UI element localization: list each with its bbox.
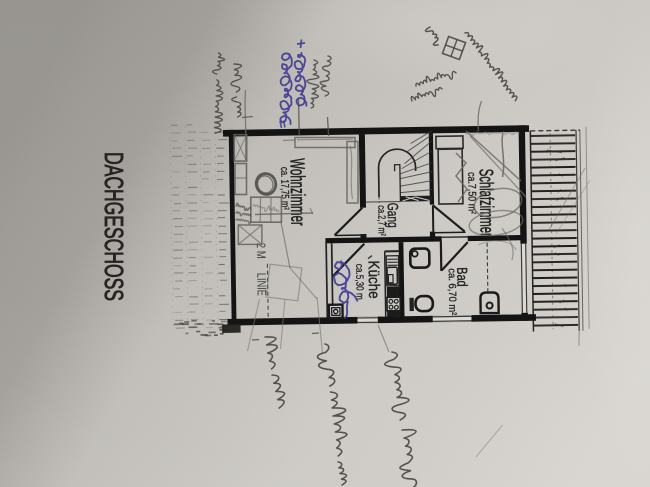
svg-text:2 M: 2 M [254, 243, 268, 259]
svg-text:ca.7,50 m²: ca.7,50 m² [465, 172, 478, 214]
svg-text:ca. 6,70 m²: ca. 6,70 m² [446, 268, 459, 316]
svg-text:ca. 17,75 m²: ca. 17,75 m² [278, 167, 291, 210]
svg-text:Küche: Küche [365, 260, 383, 298]
svg-text:DACHGESCHOSS: DACHGESCHOSS [99, 152, 127, 301]
svg-text:ca.2,7 m²: ca.2,7 m² [375, 205, 387, 236]
svg-text:ca.5,30 m: ca.5,30 m [353, 264, 366, 300]
